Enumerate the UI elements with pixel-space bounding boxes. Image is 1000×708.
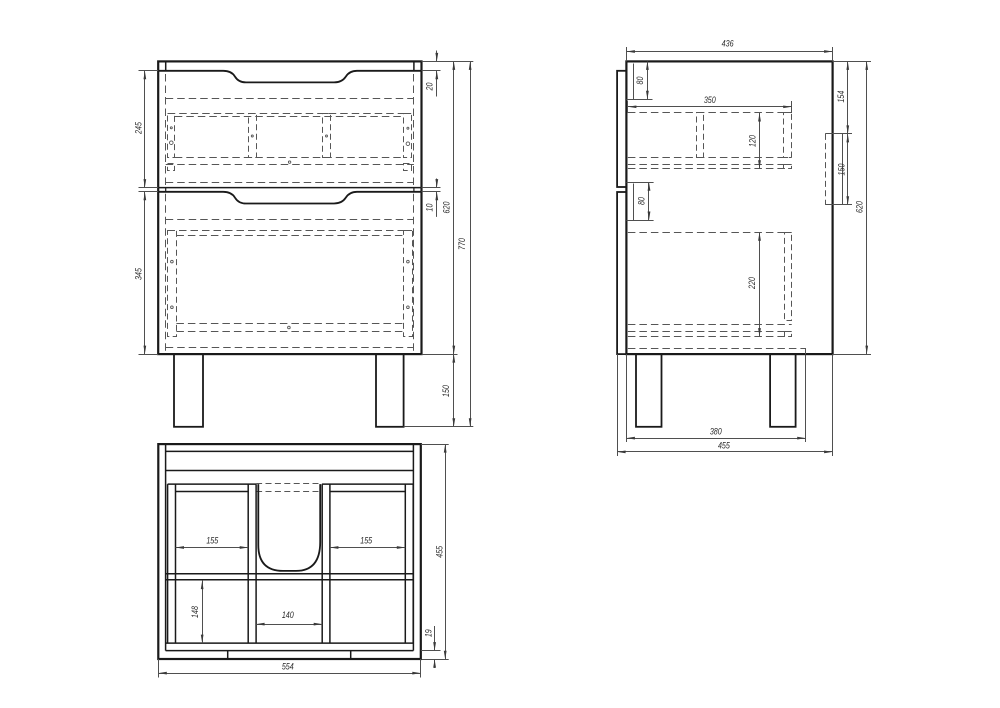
svg-text:10: 10 — [425, 203, 435, 212]
svg-text:150: 150 — [837, 163, 847, 176]
svg-text:80: 80 — [635, 76, 645, 85]
svg-text:155: 155 — [206, 535, 219, 545]
svg-text:154: 154 — [836, 91, 846, 103]
svg-text:620: 620 — [441, 201, 451, 214]
svg-text:155: 155 — [360, 535, 373, 545]
svg-text:380: 380 — [710, 427, 723, 437]
svg-text:150: 150 — [441, 384, 451, 397]
svg-text:620: 620 — [855, 200, 865, 213]
svg-text:148: 148 — [190, 605, 200, 618]
svg-text:345: 345 — [134, 267, 144, 280]
svg-text:20: 20 — [424, 82, 434, 91]
svg-text:80: 80 — [637, 196, 647, 205]
svg-text:245: 245 — [134, 121, 144, 134]
svg-text:455: 455 — [718, 440, 731, 450]
svg-text:554: 554 — [282, 661, 294, 671]
svg-text:220: 220 — [747, 276, 757, 289]
svg-text:120: 120 — [747, 134, 757, 147]
svg-text:455: 455 — [435, 545, 445, 558]
svg-text:436: 436 — [722, 39, 735, 49]
svg-text:350: 350 — [704, 95, 717, 105]
svg-text:770: 770 — [457, 237, 467, 250]
svg-text:19: 19 — [423, 629, 433, 637]
svg-text:140: 140 — [282, 610, 295, 620]
